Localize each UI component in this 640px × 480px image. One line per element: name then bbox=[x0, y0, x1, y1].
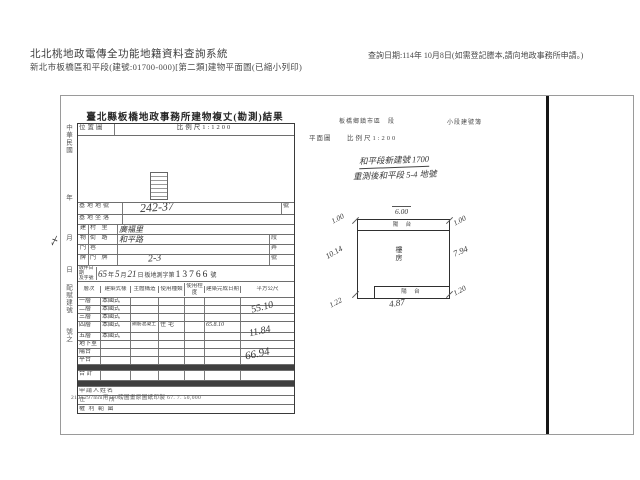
grid-header-area: 平方公尺 bbox=[240, 286, 294, 292]
grid-header-layer: 層次 bbox=[78, 286, 100, 292]
receipt-day-value: 21 bbox=[128, 269, 137, 279]
floor-5-style: 本國式 bbox=[100, 333, 130, 340]
receipt-year-value: 65 bbox=[98, 269, 107, 279]
floor-4-completion-date: 65.8.10 bbox=[204, 322, 240, 332]
floor-plan-label: 平面圖 bbox=[309, 132, 332, 142]
floor-2-style: 本國式 bbox=[100, 306, 130, 313]
door-plate-label: 門 牌 bbox=[88, 255, 117, 265]
plan-note-line-2: 重測後和平段 5-4 地號 bbox=[353, 168, 437, 183]
dim-right-height: 7.94 bbox=[452, 244, 470, 259]
floor-1-layer: 一層 bbox=[78, 298, 100, 305]
address-group-char-2: 物 bbox=[78, 235, 88, 244]
dim-left-height: 10.14 bbox=[324, 244, 344, 261]
basement-label: 地下室 bbox=[78, 341, 100, 348]
location-map-label: 位置圖 bbox=[78, 124, 114, 135]
address-group-char-1: 建 bbox=[78, 225, 88, 234]
base-land-number-value: 242-37 bbox=[140, 202, 175, 214]
receipt-number-value: 13766 bbox=[176, 270, 210, 281]
village-field: 廣福里 bbox=[117, 225, 294, 234]
receipt-month-unit: 月 bbox=[121, 273, 127, 280]
lane-label: 巷 bbox=[88, 245, 117, 254]
floor-4-use: 住宅 bbox=[158, 322, 184, 332]
base-land-number-label: 基地地號 bbox=[78, 203, 122, 214]
form-footnote: 210×297mm用100磅圖畫原圖紙印製 67. 7. 50,000 bbox=[71, 393, 201, 401]
grid-header-date: 建築完成日期 bbox=[204, 286, 240, 292]
base-location-field bbox=[122, 215, 294, 224]
receipt-year-unit: 年 bbox=[108, 273, 114, 280]
receipt-label: 收件日期 及字號 bbox=[78, 266, 96, 281]
door-plate-value: 2-3 bbox=[147, 254, 161, 265]
plan-section-header-right: 小段建號簿 bbox=[447, 117, 482, 126]
alley-label: 弄 bbox=[269, 245, 294, 254]
plan-top-balcony: 陽 台 bbox=[358, 220, 449, 231]
plan-note-line-1: 和平段新建號 1700 bbox=[359, 153, 430, 169]
dim-top-right: 1.00 bbox=[452, 213, 468, 227]
floor-5-layer: 五層 bbox=[78, 333, 100, 340]
village-value: 廣福里 bbox=[119, 225, 143, 234]
floor-row-3: 三層 本國式 bbox=[78, 313, 294, 321]
total-label: 合 計 bbox=[78, 371, 100, 380]
address-group-char-4: 牌 bbox=[78, 255, 88, 265]
door-plate-field bbox=[117, 255, 269, 265]
total-row: 合 計 bbox=[78, 370, 294, 380]
location-map-area bbox=[78, 135, 294, 202]
street-value: 和平路 bbox=[119, 235, 143, 244]
plan-section-header-left: 板橋鄉鎮市區 段 bbox=[339, 116, 395, 125]
floor-3-layer: 三層 bbox=[78, 314, 100, 321]
location-scale-label: 比例尺1:1200 bbox=[114, 124, 294, 135]
grid-header-structure: 主體構造 bbox=[130, 286, 158, 292]
floor-4-layer: 四層 bbox=[78, 322, 100, 332]
receipt-day-unit: 日 bbox=[138, 273, 144, 280]
scanned-document: 中華民國 年 月 日 配賦建號 號之 臺北縣板橋地政事務所建物複丈(勘測)結果 … bbox=[60, 95, 634, 435]
dim-bottom-left: 1.22 bbox=[328, 295, 344, 309]
survey-form-table: 位置圖 比例尺1:1200 基地地號 號 242-37 基地坐落 建 村 里 廣… bbox=[77, 123, 295, 414]
floor-3-style: 本國式 bbox=[100, 314, 130, 321]
dim-top-left: 1.00 bbox=[330, 211, 346, 225]
floor-4-style: 本國式 bbox=[100, 322, 130, 332]
receipt-number-prefix: 板地測字第 bbox=[145, 273, 175, 280]
floor-plan-sketch: 陽 台 陽 台 樓房 bbox=[357, 219, 450, 299]
paper-fold-edge bbox=[546, 96, 549, 434]
query-date: 查詢日期:114年 10月8日(如需登記謄本,請向地政事務所申請。) bbox=[368, 50, 583, 61]
base-location-label: 基地坐落 bbox=[78, 215, 122, 224]
dim-top-width: 6.00 bbox=[392, 206, 411, 216]
margin-day-label: 日 bbox=[64, 266, 71, 274]
balcony-label: 陽台 bbox=[78, 349, 100, 356]
system-title: 北北桃地政電傳全功能地籍資料查詢系統 bbox=[30, 46, 228, 61]
street-label: 街 路 bbox=[88, 235, 117, 244]
lane-field bbox=[117, 245, 269, 254]
grid-header-use: 使用種類 bbox=[158, 286, 184, 292]
document-subtitle: 新北市板橋區和平段(建號:01700-000)[第二類]建物平面圖(已縮小列印) bbox=[30, 61, 302, 73]
plan-center-label: 樓房 bbox=[394, 246, 404, 262]
location-map-stamp bbox=[150, 172, 168, 200]
receipt-month-value: 5 bbox=[115, 269, 120, 279]
floor-plan-scale: 比例尺1:200 bbox=[347, 132, 397, 142]
margin-era-label: 中華民國 bbox=[64, 124, 71, 154]
base-land-number-unit: 號 bbox=[281, 203, 294, 214]
dim-bottom-width: 4.87 bbox=[388, 297, 405, 309]
floor-2-layer: 二層 bbox=[78, 306, 100, 313]
margin-note-label: 配賦建號 bbox=[64, 284, 71, 314]
dim-bottom-right: 1.20 bbox=[452, 283, 468, 297]
rights-scope-label: 權 利 範 圍 bbox=[78, 406, 132, 413]
form-title: 臺北縣板橋地政事務所建物複丈(勘測)結果 bbox=[75, 109, 295, 123]
receipt-label-top: 收件日期 bbox=[79, 266, 95, 276]
plan-bottom-balcony: 陽 台 bbox=[374, 286, 449, 298]
margin-month-label: 月 bbox=[64, 234, 71, 242]
floor-1-style: 本國式 bbox=[100, 298, 130, 305]
village-label: 村 里 bbox=[88, 225, 117, 234]
grid-header-style: 建築式樣 bbox=[100, 286, 130, 292]
address-group-char-3: 門 bbox=[78, 245, 88, 254]
margin-year-label: 年 bbox=[64, 194, 71, 202]
platform-label: 平台 bbox=[78, 357, 100, 364]
floor-4-structure: 鋼筋混凝土 bbox=[130, 322, 158, 332]
receipt-number-suffix: 號 bbox=[210, 273, 216, 280]
margin-check-mark: 〆 bbox=[47, 233, 60, 248]
margin-suffix-label: 號之 bbox=[64, 328, 71, 343]
street-field: 和平路 bbox=[117, 235, 269, 244]
receipt-label-bottom: 及字號 bbox=[79, 276, 95, 281]
street-section-unit: 段 bbox=[269, 235, 294, 244]
door-plate-unit: 號 bbox=[269, 255, 294, 265]
grid-header-degree: 使用程度 bbox=[184, 283, 204, 295]
